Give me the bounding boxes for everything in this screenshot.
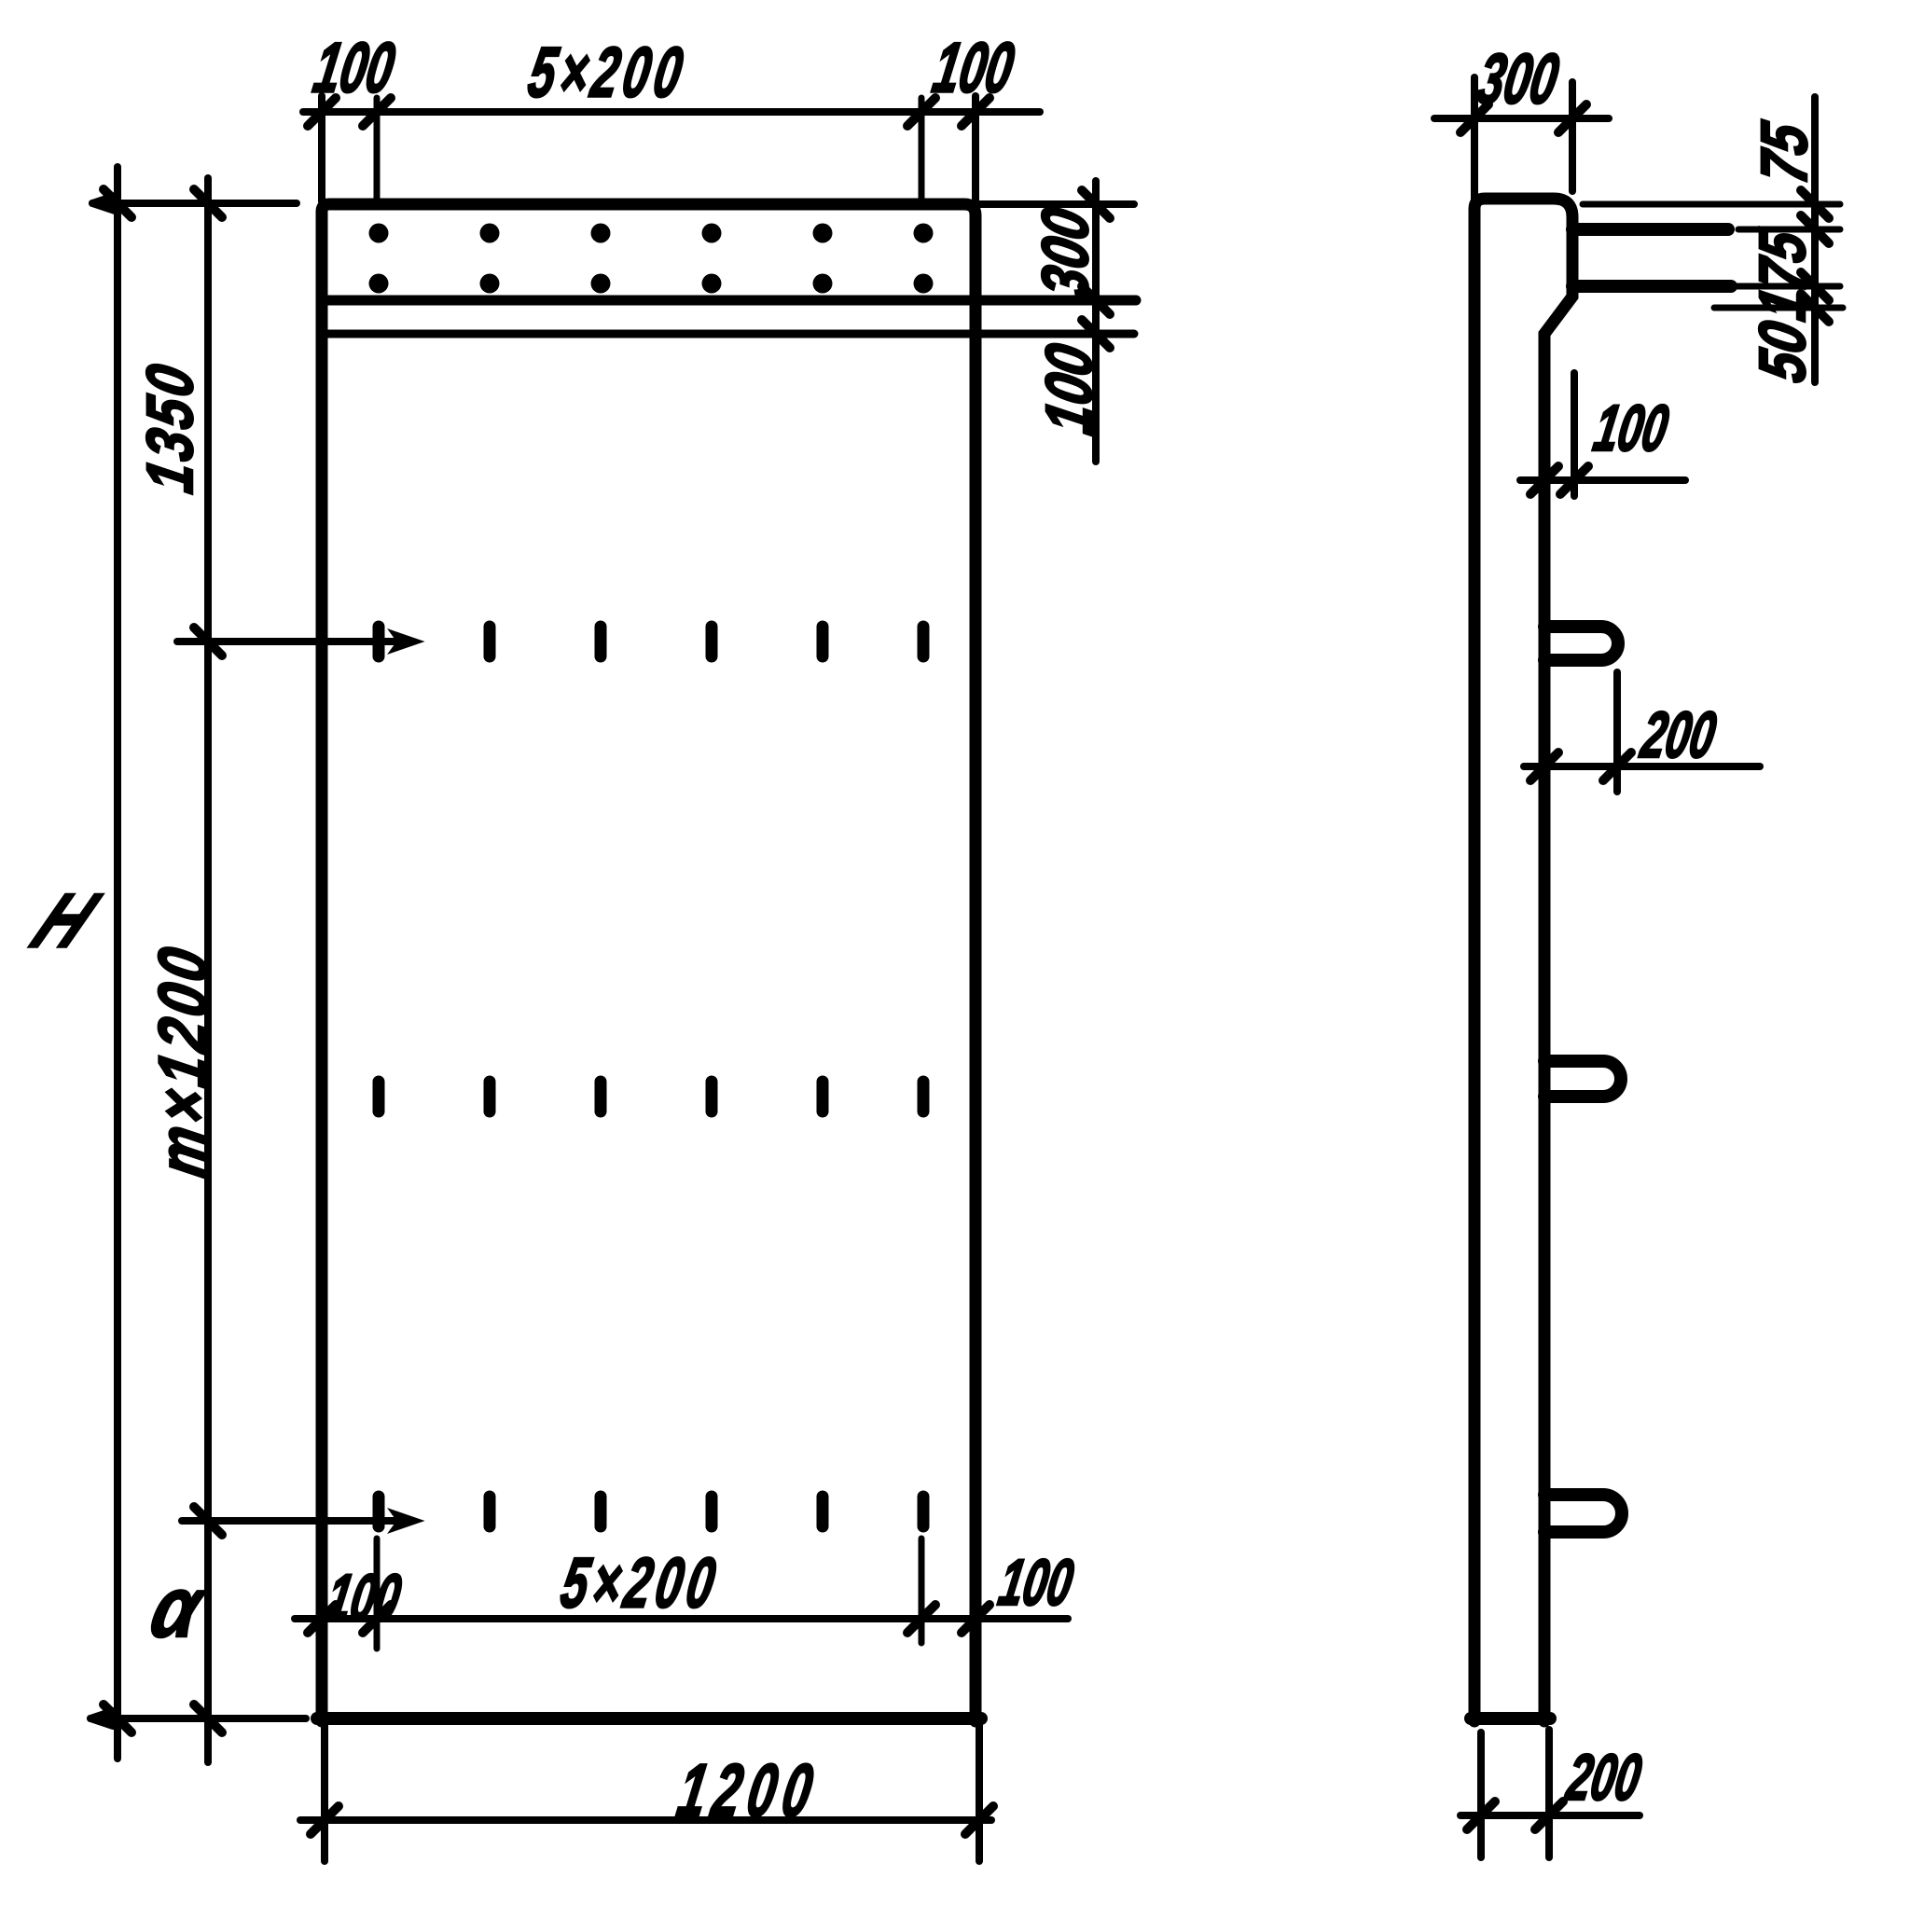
svg-text:200: 200 <box>1636 698 1722 771</box>
svg-text:5×200: 5×200 <box>523 32 693 111</box>
svg-text:300: 300 <box>1473 38 1565 117</box>
svg-text:300: 300 <box>1029 202 1102 302</box>
svg-text:100: 100 <box>322 1561 407 1634</box>
svg-text:50: 50 <box>1746 316 1820 387</box>
svg-text:H: H <box>19 879 112 964</box>
svg-text:100: 100 <box>1589 392 1674 464</box>
svg-text:100: 100 <box>1032 338 1106 438</box>
svg-text:100: 100 <box>309 27 401 106</box>
svg-text:1350: 1350 <box>133 356 207 497</box>
svg-text:m×1200: m×1200 <box>145 938 222 1182</box>
svg-text:1200: 1200 <box>672 1748 826 1832</box>
svg-text:100: 100 <box>928 27 1020 106</box>
svg-text:100: 100 <box>994 1546 1079 1619</box>
svg-text:75: 75 <box>1748 117 1821 188</box>
svg-text:175: 175 <box>1746 224 1820 325</box>
svg-text:200: 200 <box>1561 1741 1647 1814</box>
svg-text:5×200: 5×200 <box>556 1542 726 1621</box>
